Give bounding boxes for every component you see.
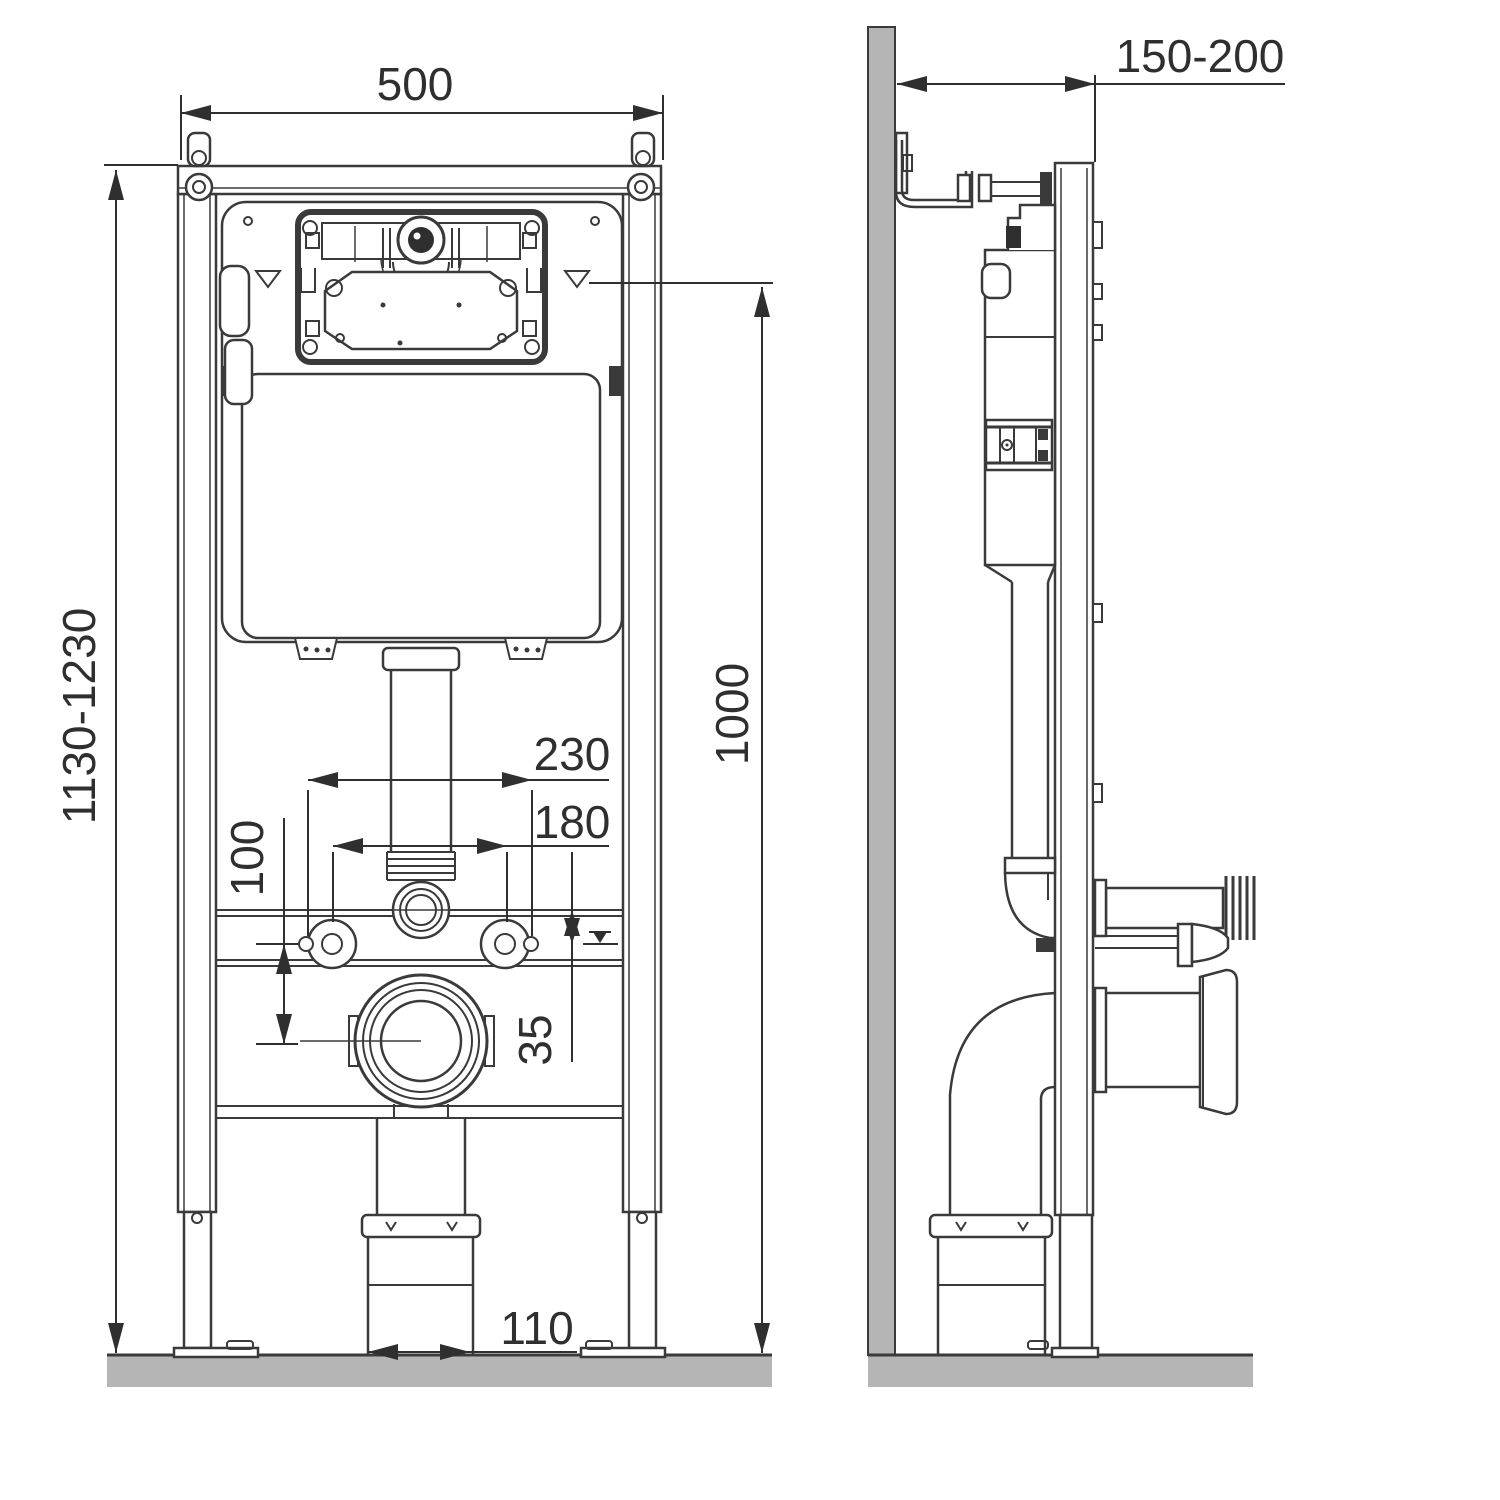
drain-outlet <box>300 975 494 1118</box>
technical-drawing-page: 500 1130-1230 1000 <box>0 0 1500 1500</box>
arrowhead <box>897 76 927 92</box>
dimension-bolt-to-outlet: 100 <box>221 818 298 1044</box>
wall-offset-label: 150-200 <box>1116 30 1285 82</box>
front-right-leg <box>629 1212 656 1348</box>
front-left-leg <box>184 1212 211 1348</box>
arrowhead <box>1065 76 1095 92</box>
rail-to-bolt-label: 35 <box>509 1014 561 1065</box>
arrowhead <box>502 772 532 788</box>
dimension-frame-height: 1130-1230 <box>53 165 178 1353</box>
side-leg <box>1060 1215 1092 1348</box>
side-dimensions: 150-200 <box>897 30 1285 162</box>
water-inlet <box>1006 226 1021 248</box>
side-cistern <box>982 205 1055 952</box>
stud-hole-left <box>299 937 313 951</box>
frame-screw-right <box>628 174 654 200</box>
dimension-frame-width: 500 <box>181 58 663 160</box>
arrowhead <box>308 772 338 788</box>
side-foot <box>1052 1348 1098 1357</box>
frame-height-label: 1130-1230 <box>53 608 105 825</box>
dimension-bolt-spacing: 180 <box>333 796 610 922</box>
outlet-diameter-label: 110 <box>500 1302 573 1354</box>
stud-spacing-label: 230 <box>534 728 611 780</box>
side-flush-plate-box <box>986 420 1052 470</box>
flush-pipe-stub <box>1095 876 1254 940</box>
arrowhead <box>754 287 770 317</box>
flush-pipe-coupling <box>387 852 455 880</box>
pan-connections <box>1095 876 1254 1114</box>
arrowhead <box>333 838 363 854</box>
arrowhead <box>108 1323 124 1353</box>
flush-pipe-collar <box>383 648 459 670</box>
arrowhead <box>477 838 507 854</box>
frame-width-label: 500 <box>377 58 454 110</box>
outlet-bell <box>1095 970 1237 1114</box>
front-top-bar <box>178 166 661 194</box>
frame-screw-left <box>186 174 212 200</box>
front-floor <box>107 1355 772 1387</box>
right-hanger-tab <box>632 133 654 166</box>
left-hanger-tab <box>188 133 210 166</box>
cistern-tank <box>242 374 600 638</box>
fixing-bolt-left <box>308 920 356 968</box>
right-hinge-clip <box>609 366 622 396</box>
fixing-stud <box>1095 924 1228 966</box>
side-floor <box>868 1355 1253 1387</box>
arrowhead <box>276 1014 292 1044</box>
flush-line-height-label: 1000 <box>706 663 758 765</box>
mounting-plate <box>325 272 517 349</box>
stud-hole-right <box>524 937 538 951</box>
bolt-spacing-label: 180 <box>534 796 611 848</box>
side-view: 150-200 <box>868 27 1285 1387</box>
side-flush-collar <box>1005 858 1055 873</box>
side-wall <box>868 27 895 1355</box>
bolt-to-outlet-label: 100 <box>221 820 273 897</box>
dimension-wall-offset: 150-200 <box>897 30 1285 162</box>
arrowhead <box>181 105 211 121</box>
installation-frame-drawing: 500 1130-1230 1000 <box>0 0 1500 1500</box>
flush-elbow <box>391 882 451 938</box>
fixing-bolt-right <box>481 920 529 968</box>
arrowhead <box>754 1323 770 1353</box>
drain-socket <box>362 1118 480 1355</box>
front-view: 500 1130-1230 1000 <box>53 58 773 1387</box>
datum-symbol <box>593 932 607 943</box>
arrowhead <box>633 105 663 121</box>
front-cistern <box>220 202 622 659</box>
side-drain-bend <box>930 993 1055 1355</box>
arrowhead <box>108 170 124 200</box>
fill-valve <box>220 266 249 336</box>
